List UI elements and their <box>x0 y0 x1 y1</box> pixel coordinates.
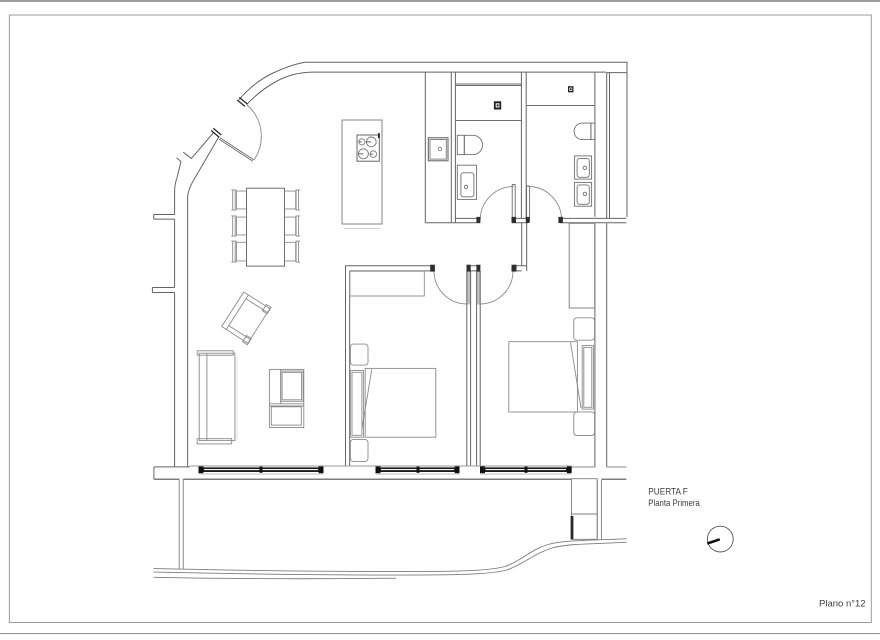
svg-text:PUERTA F: PUERTA F <box>648 486 688 497</box>
svg-text:Plano n°12: Plano n°12 <box>819 598 866 608</box>
svg-text:Planta Primera: Planta Primera <box>648 498 700 509</box>
